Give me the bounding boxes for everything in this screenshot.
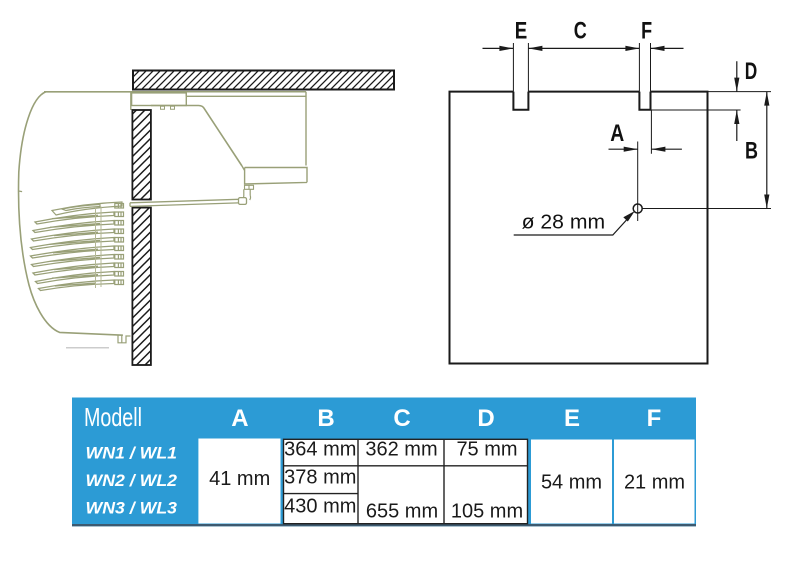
svg-text:B: B [317, 405, 334, 432]
svg-text:C: C [574, 18, 587, 45]
svg-text:362 mm: 362 mm [365, 439, 437, 461]
svg-text:75 mm: 75 mm [456, 439, 517, 461]
svg-text:E: E [515, 18, 528, 45]
svg-text:655 mm: 655 mm [366, 501, 438, 523]
svg-text:A: A [231, 405, 248, 432]
svg-text:D: D [745, 58, 758, 85]
svg-text:WN3 / WL3: WN3 / WL3 [86, 499, 178, 518]
svg-text:Modell: Modell [84, 402, 142, 432]
svg-text:364 mm: 364 mm [284, 439, 356, 461]
svg-text:54 mm: 54 mm [541, 472, 602, 494]
svg-text:21 mm: 21 mm [624, 472, 685, 494]
svg-text:B: B [745, 138, 758, 165]
svg-text:F: F [641, 18, 652, 45]
svg-text:WN1 / WL1: WN1 / WL1 [86, 444, 178, 463]
svg-text:WN2 / WL2: WN2 / WL2 [86, 471, 178, 490]
svg-text:E: E [564, 405, 580, 432]
svg-text:C: C [393, 405, 410, 432]
svg-text:F: F [647, 405, 662, 432]
svg-text:105 mm: 105 mm [451, 501, 523, 523]
svg-text:D: D [477, 405, 494, 432]
svg-text:430 mm: 430 mm [284, 496, 356, 518]
svg-text:ø 28 mm: ø 28 mm [522, 212, 606, 234]
svg-text:A: A [610, 120, 624, 147]
svg-text:41 mm: 41 mm [209, 468, 270, 490]
svg-text:378 mm: 378 mm [284, 467, 356, 489]
